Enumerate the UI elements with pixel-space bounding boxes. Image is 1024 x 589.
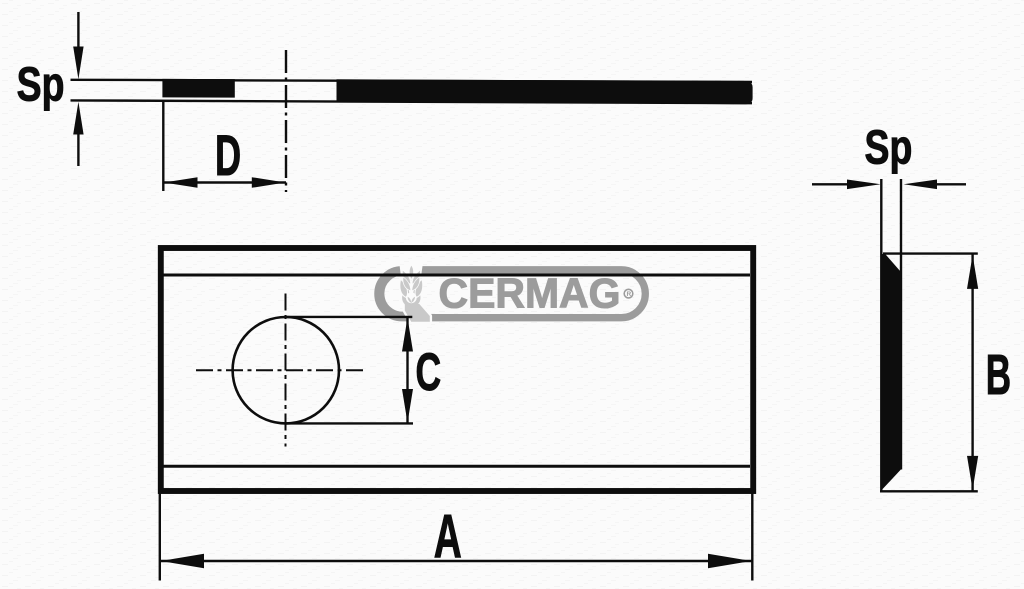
svg-text:A: A [434, 503, 462, 571]
svg-text:Sp: Sp [865, 121, 913, 175]
svg-text:R: R [627, 291, 632, 298]
svg-text:B: B [986, 343, 1011, 407]
svg-text:Sp: Sp [17, 58, 65, 112]
svg-text:D: D [215, 125, 241, 188]
svg-text:C: C [416, 342, 442, 402]
